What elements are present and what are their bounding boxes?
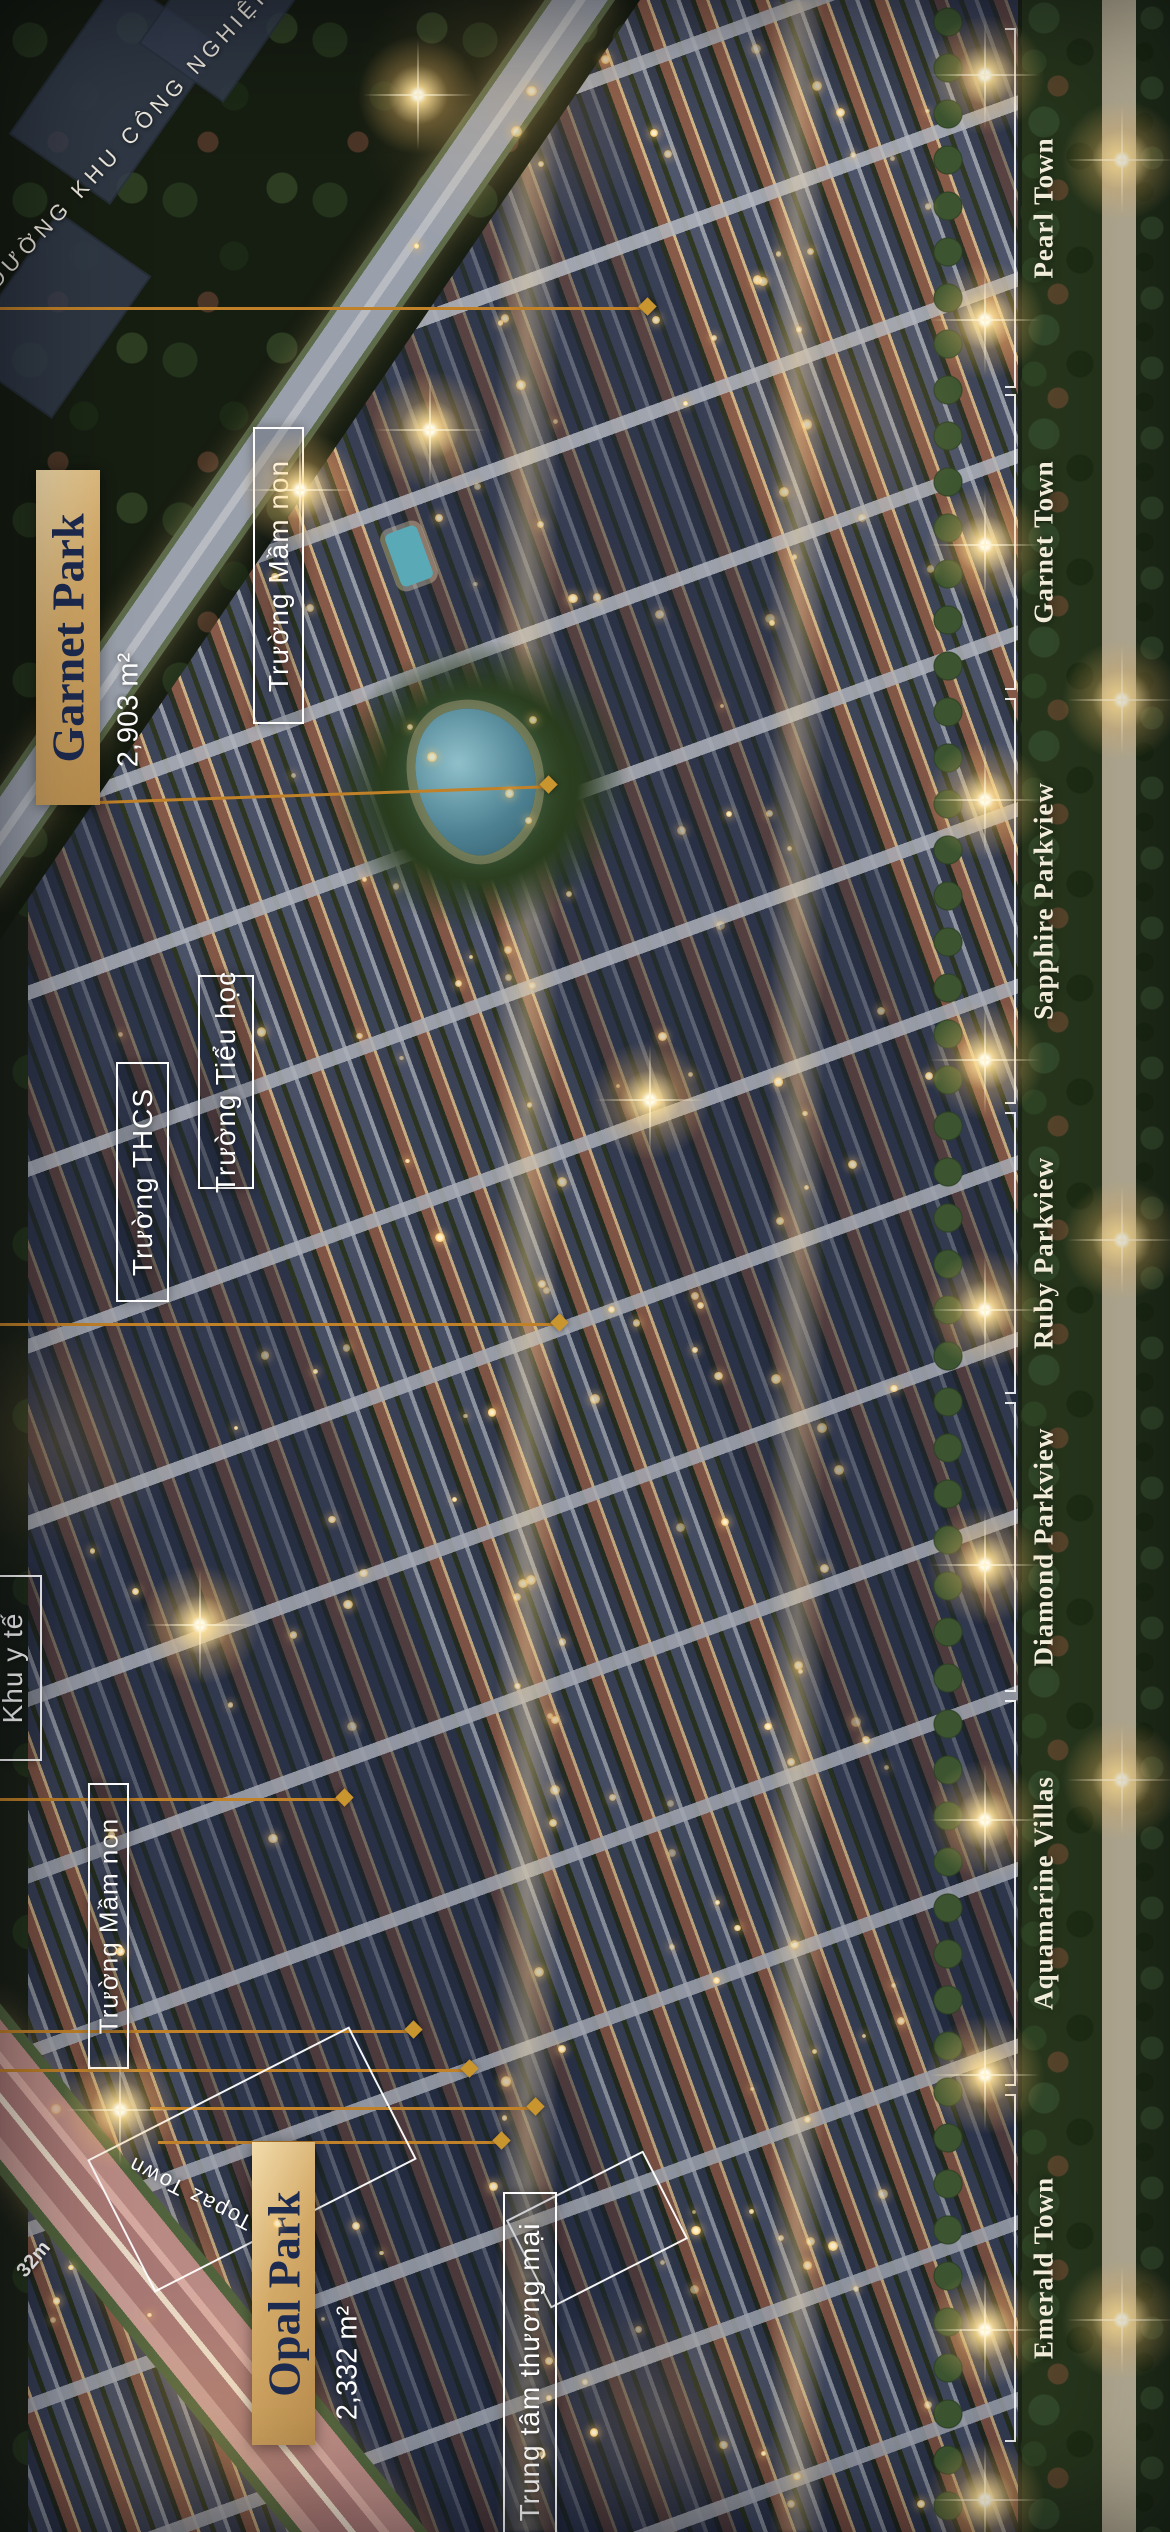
street-light [692, 1347, 698, 1353]
street-light [273, 2219, 282, 2228]
street-light [853, 2286, 859, 2292]
street-light [414, 243, 419, 248]
street-light [558, 2045, 566, 2053]
street-light [559, 1638, 566, 1645]
street-light [261, 1351, 270, 1360]
street-light [878, 2189, 888, 2199]
street-light [529, 716, 537, 724]
primary-school-label: Trường Tiểu học [198, 975, 254, 1189]
street-light [771, 1374, 781, 1384]
street-light [609, 1794, 616, 1801]
street-light [787, 846, 792, 851]
street-light [650, 129, 658, 137]
street-light-flare [1062, 640, 1170, 760]
street-light [553, 419, 558, 424]
medical-area-label: Khu y tế [0, 1575, 42, 1761]
street-light-flare [925, 1000, 1045, 1120]
street-light [504, 946, 512, 954]
street-light [668, 1849, 676, 1857]
street-light-flare [925, 2015, 1045, 2135]
street-light-flare [60, 2050, 180, 2170]
street-light [473, 582, 477, 586]
street-light [851, 1717, 861, 1727]
street-light-flare [370, 370, 490, 490]
street-light [720, 704, 724, 708]
street-light [774, 1077, 783, 1086]
street-light [328, 1516, 335, 1523]
garnet-park-area: 2,903 m² [102, 635, 156, 785]
street-light [511, 126, 522, 137]
street-light [514, 1683, 520, 1689]
street-light [557, 1177, 567, 1187]
street-light [751, 44, 761, 54]
street-light-flare [925, 260, 1045, 380]
street-light [501, 314, 510, 323]
street-light [502, 2115, 508, 2121]
street-light [691, 1292, 699, 1300]
street-light [228, 1702, 233, 1707]
street-light [379, 2251, 384, 2256]
opal-park-area: 2,332 m² [322, 2290, 374, 2435]
street-light-flare [140, 1565, 260, 1685]
street-light [787, 2500, 795, 2508]
street-light-flare [925, 485, 1045, 605]
street-light [890, 1385, 898, 1393]
street-light [836, 108, 845, 117]
street-light [765, 614, 774, 623]
street-light [803, 2261, 811, 2269]
street-light [677, 826, 686, 835]
masterplan-rendering: ĐƯỜNG KHU CÔNG NGHIỆP LONG Garnet Park 2… [0, 0, 1170, 2532]
street-light [343, 1344, 351, 1352]
street-light [779, 487, 789, 497]
street-light [716, 921, 725, 930]
street-light-flare [590, 1040, 710, 1160]
street-light [877, 1007, 885, 1015]
street-light [527, 1102, 532, 1107]
street-light [590, 2428, 599, 2437]
street-light [692, 2210, 696, 2214]
street-light-flare [925, 2270, 1045, 2390]
street-light [593, 593, 601, 601]
street-light [271, 573, 279, 581]
kindergarten-label: Trường Mầm non [88, 1783, 129, 2069]
street-light [50, 2317, 56, 2323]
street-light [525, 817, 532, 824]
street-light [257, 1027, 266, 1036]
street-light-flare [925, 15, 1045, 135]
street-light [792, 554, 797, 559]
street-light-flare [925, 1760, 1045, 1880]
street-light [828, 2241, 837, 2250]
street-light [660, 2260, 665, 2265]
leader-line [0, 307, 648, 310]
street-light [749, 2209, 754, 2214]
garnet-park-label: Garnet Park [36, 470, 100, 805]
street-light [761, 2451, 766, 2456]
street-light [925, 203, 931, 209]
street-light [359, 1569, 367, 1577]
street-light [787, 1758, 795, 1766]
opal-park-label: Opal Park [252, 2142, 315, 2445]
street-light [505, 789, 514, 798]
street-light [362, 877, 367, 882]
street-light-flare [925, 740, 1045, 860]
street-light [90, 1548, 95, 1553]
street-light [758, 277, 768, 287]
street-light [590, 1394, 600, 1404]
street-light [405, 1159, 410, 1164]
leader-line [0, 1798, 345, 1801]
street-light [582, 2379, 587, 2384]
street-light-flare [925, 2440, 1045, 2532]
street-light [601, 55, 610, 64]
street-light [290, 1631, 297, 1638]
leader-line [0, 1323, 560, 1326]
street-light [714, 1372, 722, 1380]
street-light [858, 514, 866, 522]
street-light [848, 1160, 857, 1169]
street-light-flare [925, 1505, 1045, 1625]
street-light [764, 1723, 771, 1730]
street-light [796, 326, 802, 332]
lit-internal-road [498, 0, 556, 2532]
street-light [343, 1600, 352, 1609]
street-light [669, 1944, 675, 1950]
street-light [435, 514, 443, 522]
street-light [534, 1967, 544, 1977]
street-light [719, 2441, 727, 2449]
secondary-school-label: Trường THCS [116, 1062, 169, 1302]
street-light [667, 1800, 674, 1807]
street-light [546, 2395, 551, 2400]
street-light [568, 594, 577, 603]
street-light [820, 1564, 829, 1573]
street-light [834, 1465, 844, 1475]
street-light [427, 752, 437, 762]
street-light [352, 2222, 360, 2230]
street-light [147, 2313, 152, 2318]
street-light-flare [1062, 1720, 1170, 1840]
street-light [766, 810, 773, 817]
street-light [807, 248, 814, 255]
street-light [543, 1287, 550, 1294]
street-light [812, 2049, 817, 2054]
street-light-flare [925, 1250, 1045, 1370]
street-light [690, 2285, 699, 2294]
street-light [347, 1722, 356, 1731]
street-light [890, 156, 894, 160]
street-light [635, 2326, 642, 2333]
street-light [608, 1306, 615, 1313]
street-light [884, 1765, 889, 1770]
street-light [393, 883, 399, 889]
street-light-flare [1062, 1180, 1170, 1300]
street-light [802, 1111, 808, 1117]
street-light [68, 2265, 73, 2270]
street-light [721, 1518, 729, 1526]
street-light-flare [1062, 100, 1170, 220]
street-light-flare [1062, 2260, 1170, 2380]
street-light [691, 2226, 700, 2235]
street-light [526, 86, 536, 96]
garnet-park-name: Garnet Park [42, 513, 95, 762]
street-light-flare [240, 430, 360, 550]
street-light [817, 1423, 826, 1432]
street-light [806, 2237, 815, 2246]
street-light [537, 521, 543, 527]
street-light [891, 1983, 896, 1988]
street-light [550, 1785, 560, 1795]
street-light-flare [358, 35, 478, 155]
street-light [802, 419, 813, 430]
street-light [776, 251, 781, 256]
street-light [501, 2076, 511, 2086]
street-light [516, 380, 526, 390]
street-light [489, 2182, 498, 2191]
street-light [804, 2116, 811, 2123]
